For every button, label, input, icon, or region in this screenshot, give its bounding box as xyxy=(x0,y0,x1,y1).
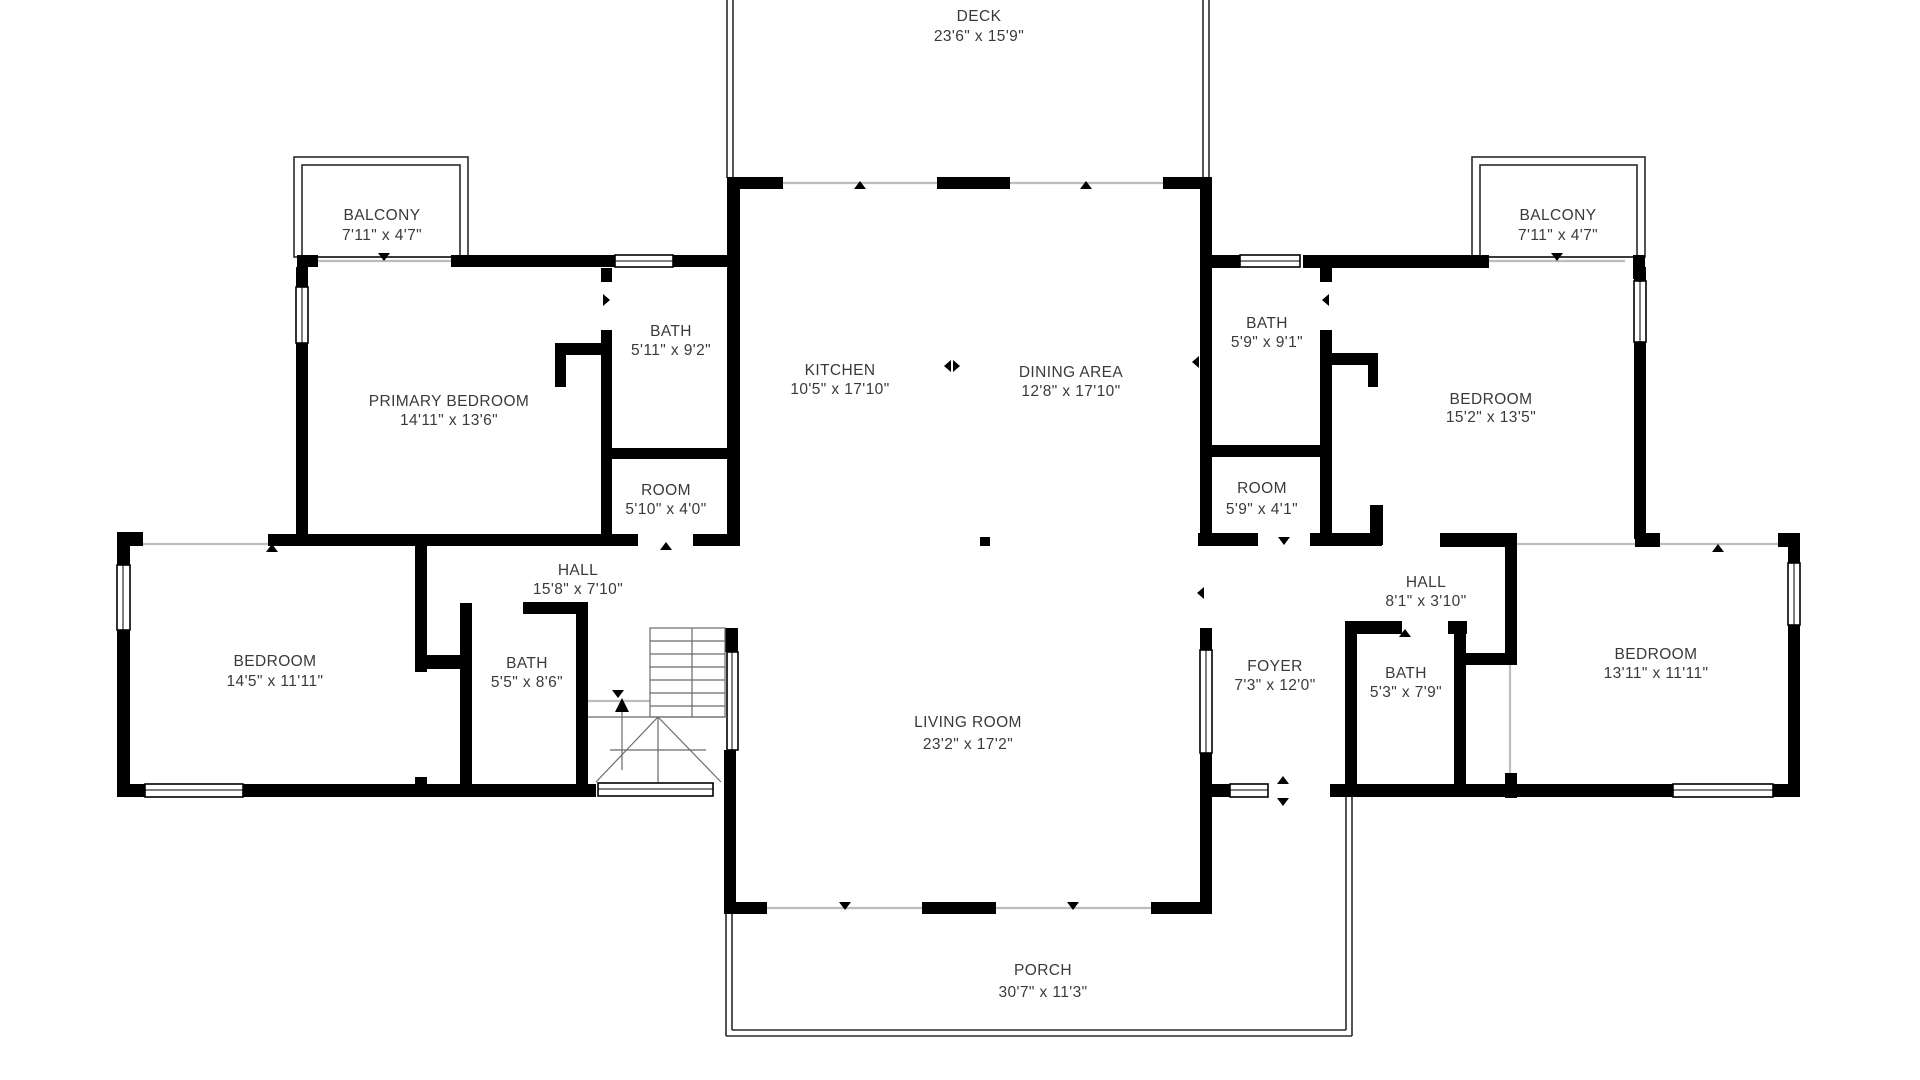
room-label-kitchen: KITCHEN 10'5" x 17'10" xyxy=(790,362,889,398)
window-icon xyxy=(1673,784,1773,797)
window-icon xyxy=(1230,784,1268,797)
window-icon xyxy=(117,565,130,630)
room-name: ROOM xyxy=(1237,480,1287,497)
room-label-bedroom-upper-right: BEDROOM 15'2" x 13'5" xyxy=(1446,391,1536,426)
room-label-room-left: ROOM 5'10" x 4'0" xyxy=(625,482,706,518)
room-name: DINING AREA xyxy=(1019,364,1124,381)
room-name: BALCONY xyxy=(1520,207,1597,224)
room-label-dining-area: DINING AREA 12'8" x 17'10" xyxy=(1019,364,1124,400)
room-name: BEDROOM xyxy=(1615,646,1698,663)
room-label-bath-left: BATH 5'5" x 8'6" xyxy=(491,655,563,691)
room-dims: 10'5" x 17'10" xyxy=(790,381,889,398)
window-icon xyxy=(615,255,673,267)
room-dims: 7'3" x 12'0" xyxy=(1234,677,1315,694)
room-dims: 5'3" x 7'9" xyxy=(1370,684,1442,701)
room-label-bath-upper-left: BATH 5'11" x 9'2" xyxy=(631,323,711,359)
room-label-balcony-left: BALCONY 7'11" x 4'7" xyxy=(342,207,422,244)
room-label-bedroom-right: BEDROOM 13'11" x 11'11" xyxy=(1604,646,1709,682)
window-icon xyxy=(296,287,308,343)
room-label-primary-bedroom: PRIMARY BEDROOM 14'11" x 13'6" xyxy=(369,393,529,429)
staircase xyxy=(588,628,727,782)
window-icon xyxy=(1788,563,1800,625)
room-label-balcony-right: BALCONY 7'11" x 4'7" xyxy=(1518,207,1598,244)
floor-plan-drawing: DECK 23'6" x 15'9" BALCONY 7'11" x 4'7" … xyxy=(0,0,1920,1080)
room-name: ROOM xyxy=(641,482,691,499)
floor-plan-page: DECK 23'6" x 15'9" BALCONY 7'11" x 4'7" … xyxy=(0,0,1920,1080)
window-icon xyxy=(1634,281,1646,342)
room-dims: 30'7" x 11'3" xyxy=(998,984,1087,1001)
room-name: KITCHEN xyxy=(805,362,876,379)
room-label-bath-upper-right: BATH 5'9" x 9'1" xyxy=(1231,315,1303,351)
window-icon xyxy=(727,652,738,750)
room-dims: 14'11" x 13'6" xyxy=(400,412,498,429)
room-dims: 13'11" x 11'11" xyxy=(1604,665,1709,682)
room-name: BATH xyxy=(506,655,548,672)
room-name: DECK xyxy=(957,8,1002,25)
room-name: BATH xyxy=(1385,665,1427,682)
deck-outline xyxy=(727,0,1209,178)
room-dims: 8'1" x 3'10" xyxy=(1385,593,1466,610)
room-label-hall-right: HALL 8'1" x 3'10" xyxy=(1385,574,1466,610)
window-icon xyxy=(1200,650,1212,753)
room-dims: 5'5" x 8'6" xyxy=(491,674,563,691)
room-label-bath-lower-right: BATH 5'3" x 7'9" xyxy=(1370,665,1442,701)
room-dims: 15'2" x 13'5" xyxy=(1446,409,1536,426)
room-dims: 5'11" x 9'2" xyxy=(631,342,711,359)
room-dims: 14'5" x 11'11" xyxy=(227,673,324,690)
room-name: BALCONY xyxy=(344,207,421,224)
window-icon xyxy=(598,783,713,796)
room-name: PRIMARY BEDROOM xyxy=(369,393,529,410)
room-label-porch: PORCH 30'7" x 11'3" xyxy=(998,962,1087,1001)
room-dims: 5'9" x 4'1" xyxy=(1226,501,1298,518)
window-icon xyxy=(145,784,243,797)
room-dims: 15'8" x 7'10" xyxy=(533,581,623,598)
room-name: HALL xyxy=(1406,574,1446,591)
room-label-hall-left: HALL 15'8" x 7'10" xyxy=(533,562,623,598)
room-dims: 12'8" x 17'10" xyxy=(1021,383,1120,400)
room-label-deck: DECK 23'6" x 15'9" xyxy=(934,8,1024,45)
room-name: BEDROOM xyxy=(1450,391,1533,408)
room-label-bedroom-left: BEDROOM 14'5" x 11'11" xyxy=(227,653,324,690)
room-name: HALL xyxy=(558,562,598,579)
window-icon xyxy=(1240,255,1300,267)
room-label-foyer: FOYER 7'3" x 12'0" xyxy=(1234,658,1315,694)
room-label-room-right: ROOM 5'9" x 4'1" xyxy=(1226,480,1298,518)
room-name: LIVING ROOM xyxy=(914,714,1022,731)
room-dims: 7'11" x 4'7" xyxy=(342,227,422,244)
room-name: BATH xyxy=(650,323,692,340)
room-dims: 5'10" x 4'0" xyxy=(625,501,706,518)
room-dims: 23'2" x 17'2" xyxy=(923,736,1013,753)
room-name: PORCH xyxy=(1014,962,1072,979)
walls xyxy=(117,177,1800,914)
room-dims: 5'9" x 9'1" xyxy=(1231,334,1303,351)
room-name: BATH xyxy=(1246,315,1288,332)
room-dims: 7'11" x 4'7" xyxy=(1518,227,1598,244)
room-name: BEDROOM xyxy=(234,653,317,670)
room-name: FOYER xyxy=(1247,658,1302,675)
room-dims: 23'6" x 15'9" xyxy=(934,28,1024,45)
room-label-living-room: LIVING ROOM 23'2" x 17'2" xyxy=(914,714,1022,753)
